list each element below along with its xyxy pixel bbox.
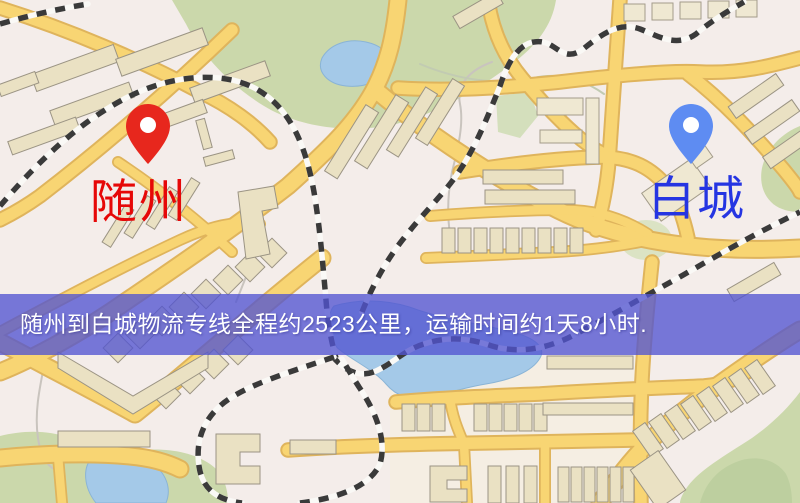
origin-marker-label: 随州 bbox=[90, 178, 188, 225]
blue-pin-icon bbox=[668, 103, 714, 165]
destination-marker bbox=[668, 103, 714, 165]
map-canvas: 随州 白城 随州到白城物流专线全程约2523公里，运输时间约1天8小时. bbox=[0, 0, 800, 503]
red-pin-icon bbox=[125, 103, 171, 165]
destination-marker-label: 白城 bbox=[648, 175, 746, 222]
route-info-text: 随州到白城物流专线全程约2523公里，运输时间约1天8小时. bbox=[0, 294, 800, 355]
route-info-banner: 随州到白城物流专线全程约2523公里，运输时间约1天8小时. bbox=[0, 294, 800, 355]
origin-marker bbox=[125, 103, 171, 165]
map-image bbox=[0, 0, 800, 503]
